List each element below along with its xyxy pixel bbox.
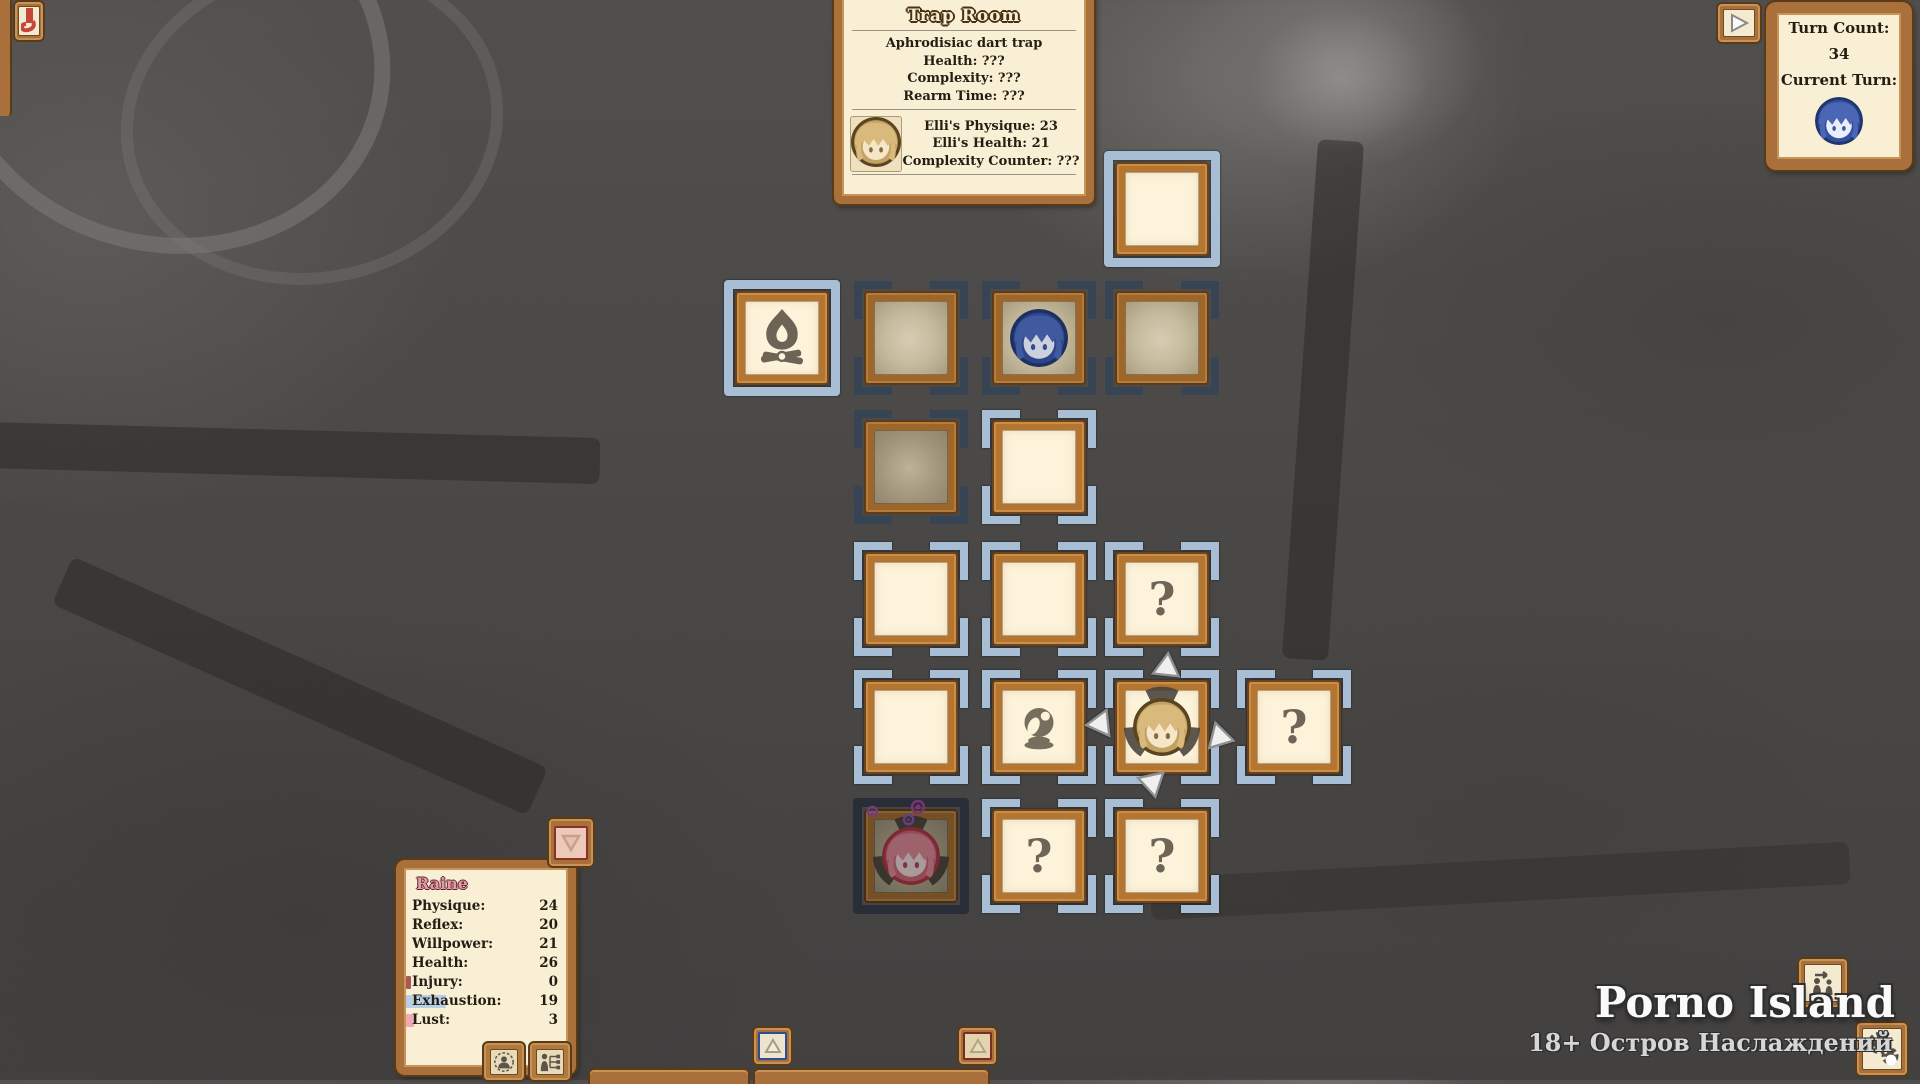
map-tile-r5c3[interactable] (985, 673, 1093, 781)
move-arrow-left-icon[interactable] (1082, 711, 1112, 741)
map-tile-r3c2[interactable] (857, 413, 965, 521)
stat-label: Injury: (412, 973, 463, 992)
map-tile-r2c2[interactable] (857, 284, 965, 392)
character-token-blonde (1133, 698, 1191, 756)
stone-trench-3 (1282, 139, 1364, 661)
divider (852, 174, 1076, 175)
trap-complexity: Complexity: ??? (842, 70, 1086, 88)
tile-face (1125, 301, 1199, 375)
charm-sparkle-icon (901, 812, 916, 827)
map-tile-r1c4[interactable] (1108, 155, 1216, 263)
map-tile-r5c4[interactable] (1108, 673, 1216, 781)
complexity-counter: Complexity Counter: ??? (902, 153, 1080, 171)
stat-label: Reflex: (412, 916, 463, 935)
character-name: Raine (416, 874, 568, 893)
current-turn-label: Current Turn: (1777, 69, 1901, 91)
elli-physique: Elli's Physique: 23 (902, 118, 1080, 136)
stat-row-health: Health:26 (404, 954, 568, 973)
unknown-room-icon: ? (1149, 833, 1176, 879)
trap-health: Health: ??? (842, 53, 1086, 71)
crystal-ball-icon (1010, 698, 1068, 756)
scroll-up-button-red[interactable] (957, 1026, 998, 1066)
stone-trench-2 (52, 556, 548, 815)
stat-label: Health: (412, 954, 468, 973)
stat-value: 20 (539, 916, 558, 935)
tile-face (874, 430, 948, 504)
tile-face (1002, 562, 1076, 636)
tile-face (874, 819, 948, 893)
map-tile-r4c4[interactable]: ? (1108, 545, 1216, 653)
alert-banner-icon (21, 8, 37, 34)
elli-health: Elli's Health: 21 (902, 135, 1080, 153)
trap-name: Aphrodisiac dart trap (842, 35, 1086, 53)
stat-bar (406, 976, 411, 989)
trap-room-title: Trap Room (842, 6, 1086, 26)
stat-row-injury: Injury:0 (404, 973, 568, 992)
trap-room-panel: Trap Room Aphrodisiac dart trap Health: … (834, 0, 1094, 204)
stat-row-lust: Lust:3 (404, 1011, 568, 1030)
stat-value: 0 (549, 973, 558, 992)
tile-face (1125, 172, 1199, 246)
collapse-panel-button[interactable] (547, 817, 595, 868)
tile-face (1002, 690, 1076, 764)
tile-face (874, 562, 948, 636)
tile-face (745, 301, 819, 375)
alert-banner-button[interactable] (13, 0, 45, 42)
scroll-up-button-blue[interactable] (752, 1026, 793, 1066)
stone-arch-decor (0, 0, 433, 301)
elli-portrait (850, 116, 902, 172)
stone-trench-4 (1149, 842, 1850, 921)
map-tile-r3c3[interactable] (985, 413, 1093, 521)
tile-face (874, 690, 948, 764)
charm-sparkle-icon (865, 804, 880, 819)
stat-label: Physique: (412, 897, 485, 916)
stat-value: 24 (539, 897, 558, 916)
character-token-blue (1010, 309, 1068, 367)
stone-trench (0, 422, 600, 484)
bottom-panel-edge-left (588, 1068, 750, 1084)
map-tile-r6c2[interactable] (857, 802, 965, 910)
map-tile-r2c4[interactable] (1108, 284, 1216, 392)
tile-face (1002, 430, 1076, 504)
map-tile-r5c2[interactable] (857, 673, 965, 781)
stat-value: 26 (539, 954, 558, 973)
divider (852, 109, 1076, 110)
character-token-pink (882, 827, 940, 885)
stat-row-willpower: Willpower:21 (404, 935, 568, 954)
map-tile-r4c2[interactable] (857, 545, 965, 653)
stone-arch-decor-2 (95, 0, 529, 315)
unknown-room-icon: ? (1149, 576, 1176, 622)
trap-rearm-time: Rearm Time: ??? (842, 88, 1086, 106)
stat-value: 3 (549, 1011, 558, 1030)
stat-value: 19 (539, 992, 558, 1011)
portrait-circle-icon (493, 1051, 515, 1073)
move-arrow-right-icon[interactable] (1208, 725, 1238, 755)
chevron-down-icon (560, 833, 582, 853)
divider (852, 30, 1076, 31)
bottom-panel-edge-right (753, 1068, 990, 1084)
stat-row-exhaustion: Exhaustion:19 (404, 992, 568, 1011)
play-arrow-icon (1728, 13, 1750, 33)
skill-tree-button[interactable] (528, 1041, 572, 1082)
left-edge-panel (0, 0, 12, 116)
map-tile-r2c3[interactable] (985, 284, 1093, 392)
stat-label: Exhaustion: (412, 992, 501, 1011)
tile-face (1002, 301, 1076, 375)
tile-face: ? (1125, 819, 1199, 893)
character-portrait-button[interactable] (482, 1041, 526, 1082)
chevron-up-icon (969, 1038, 987, 1054)
skill-tree-icon (538, 1051, 562, 1073)
unknown-room-icon: ? (1281, 704, 1308, 750)
unknown-room-icon: ? (1026, 833, 1053, 879)
chevron-up-icon (764, 1038, 782, 1054)
map-tile-r4c3[interactable] (985, 545, 1093, 653)
game-subtitle: 18+ Остров Наслаждений (1528, 1028, 1892, 1057)
map-tile-r6c3[interactable]: ? (985, 802, 1093, 910)
current-turn-portrait (1815, 97, 1863, 145)
stat-label: Lust: (412, 1011, 450, 1030)
play-next-button[interactable] (1716, 2, 1762, 44)
stat-row-physique: Physique:24 (404, 897, 568, 916)
map-tile-r6c4[interactable]: ? (1108, 802, 1216, 910)
map-tile-r2c1[interactable] (728, 284, 836, 392)
torch-glow (1250, 10, 1430, 150)
turn-count-panel: Turn Count: 34 Current Turn: (1766, 2, 1912, 170)
tile-face: ? (1257, 690, 1331, 764)
map-tile-r5c5[interactable]: ? (1240, 673, 1348, 781)
tile-face (1125, 690, 1199, 764)
tile-face (874, 301, 948, 375)
turn-count-value: 34 (1777, 43, 1901, 65)
tile-face: ? (1002, 819, 1076, 893)
campfire-icon (751, 307, 813, 369)
character-stats-list: Physique:24Reflex:20Willpower:21Health:2… (404, 897, 568, 1030)
stat-value: 21 (539, 935, 558, 954)
move-arrow-up-icon[interactable] (1152, 651, 1182, 681)
stat-row-reflex: Reflex:20 (404, 916, 568, 935)
game-title: Porno Island (1595, 978, 1895, 1027)
turn-count-label: Turn Count: (1777, 17, 1901, 39)
stat-label: Willpower: (412, 935, 493, 954)
tile-face: ? (1125, 562, 1199, 636)
